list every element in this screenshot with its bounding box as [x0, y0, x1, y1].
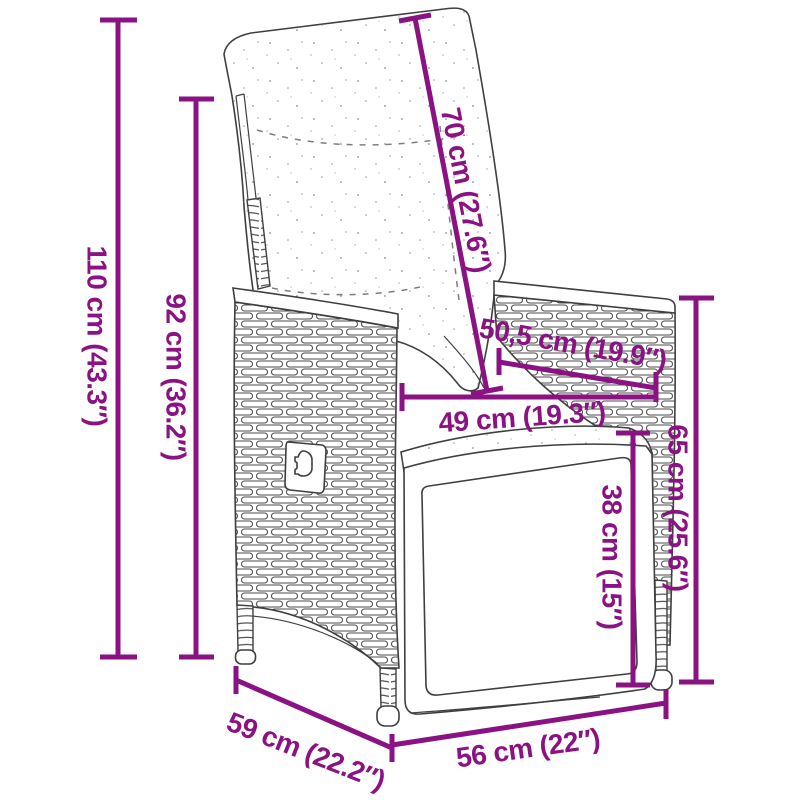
- dimension-label-backrest-height: 92 cm (36.2″): [161, 293, 192, 460]
- front-right-leg: [380, 668, 396, 707]
- dimension-label-footrest-height: 38 cm (15″): [597, 485, 628, 630]
- dimension-seat-depth: 59 cm (22.2″): [223, 666, 392, 796]
- front-left-foot: [236, 650, 256, 664]
- dimension-label-seat-depth: 59 cm (22.2″): [223, 706, 390, 796]
- front-right-foot: [377, 706, 399, 726]
- dimension-label-total-height: 110 cm (43.3″): [82, 246, 113, 427]
- dimension-label-armrest-height: 65 cm (25.6″): [663, 424, 694, 591]
- dimension-backrest-height: 92 cm (36.2″): [161, 99, 215, 657]
- dimension-total-height: 110 cm (43.3″): [82, 20, 138, 657]
- dimension-diagram: 110 cm (43.3″) 92 cm (36.2″) 70 cm (27.6…: [0, 0, 800, 800]
- front-left-leg: [237, 605, 253, 651]
